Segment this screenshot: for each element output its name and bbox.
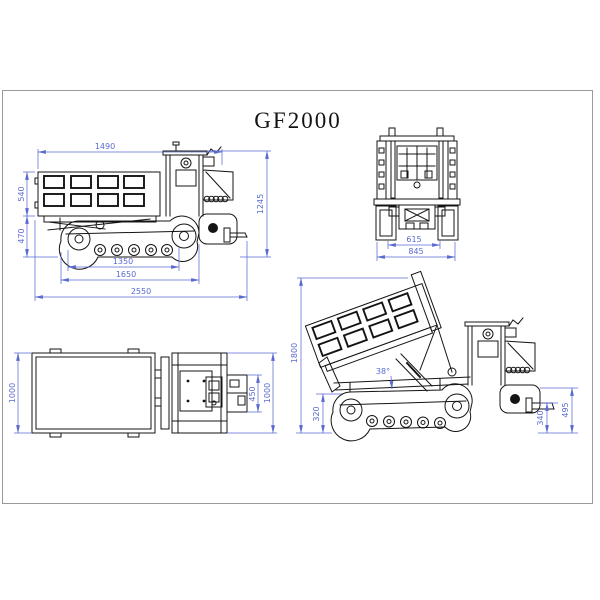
cargo-bed	[35, 172, 160, 222]
rear-chassis	[389, 205, 445, 229]
dim-text-845: 845	[408, 247, 423, 256]
plan-cargo-bed	[32, 349, 161, 437]
dim-text-angle: 38°	[376, 367, 390, 376]
dim-text-1245: 1245	[256, 194, 265, 214]
lift-cylinder	[334, 325, 470, 392]
technical-drawing-page: GF2000	[0, 0, 600, 600]
dim-rear-height: 495	[540, 388, 578, 433]
dim-text-540: 540	[17, 186, 26, 201]
dim-text-1650: 1650	[116, 270, 136, 279]
dim-text-2550: 2550	[131, 287, 151, 296]
dim-text-1350: 1350	[113, 257, 133, 266]
plan-chassis	[161, 353, 227, 433]
plan-engine-overhang	[227, 375, 247, 412]
dim-tail-clearance: 320	[312, 394, 342, 433]
dim-text-plan-1000-right: 1000	[263, 383, 272, 403]
dim-dump-angle: 38°	[376, 367, 392, 389]
dim-wheelbase: 1350	[68, 248, 179, 271]
tipped-track-assembly	[331, 384, 472, 441]
dim-text-1490: 1490	[95, 142, 115, 151]
page-title: GF2000	[254, 108, 341, 133]
side-view: 1490 540 470 1245 1350	[17, 142, 271, 301]
rear-engine-block	[374, 146, 460, 205]
dim-chassis-inner-width: 450	[247, 375, 262, 412]
dim-text-plan-1000-left: 1000	[8, 383, 17, 403]
tipped-engine-unit	[465, 318, 540, 413]
dim-text-320: 320	[312, 406, 321, 421]
dim-dump-height: 1800	[290, 278, 408, 433]
dim-text-340: 340	[536, 410, 545, 425]
rear-view: 615 845	[374, 128, 460, 261]
tipped-tailgate	[319, 357, 340, 392]
dim-bed-side-height: 540	[17, 172, 35, 216]
tipped-bed	[301, 271, 442, 373]
dim-overall-height: 1245	[207, 151, 271, 257]
plan-view: 1000 450 1000	[8, 349, 277, 437]
tipped-view: 1800 320 38° 340 495	[290, 271, 578, 441]
dim-bed-width: 1000	[8, 353, 32, 433]
dim-text-470: 470	[17, 228, 26, 243]
dim-text-450: 450	[248, 386, 257, 401]
dim-text-615: 615	[406, 235, 421, 244]
tipping-linkage	[48, 218, 150, 230]
dim-text-1800: 1800	[290, 343, 299, 363]
drawing-canvas: GF2000	[0, 0, 600, 600]
dim-text-495: 495	[561, 402, 570, 417]
